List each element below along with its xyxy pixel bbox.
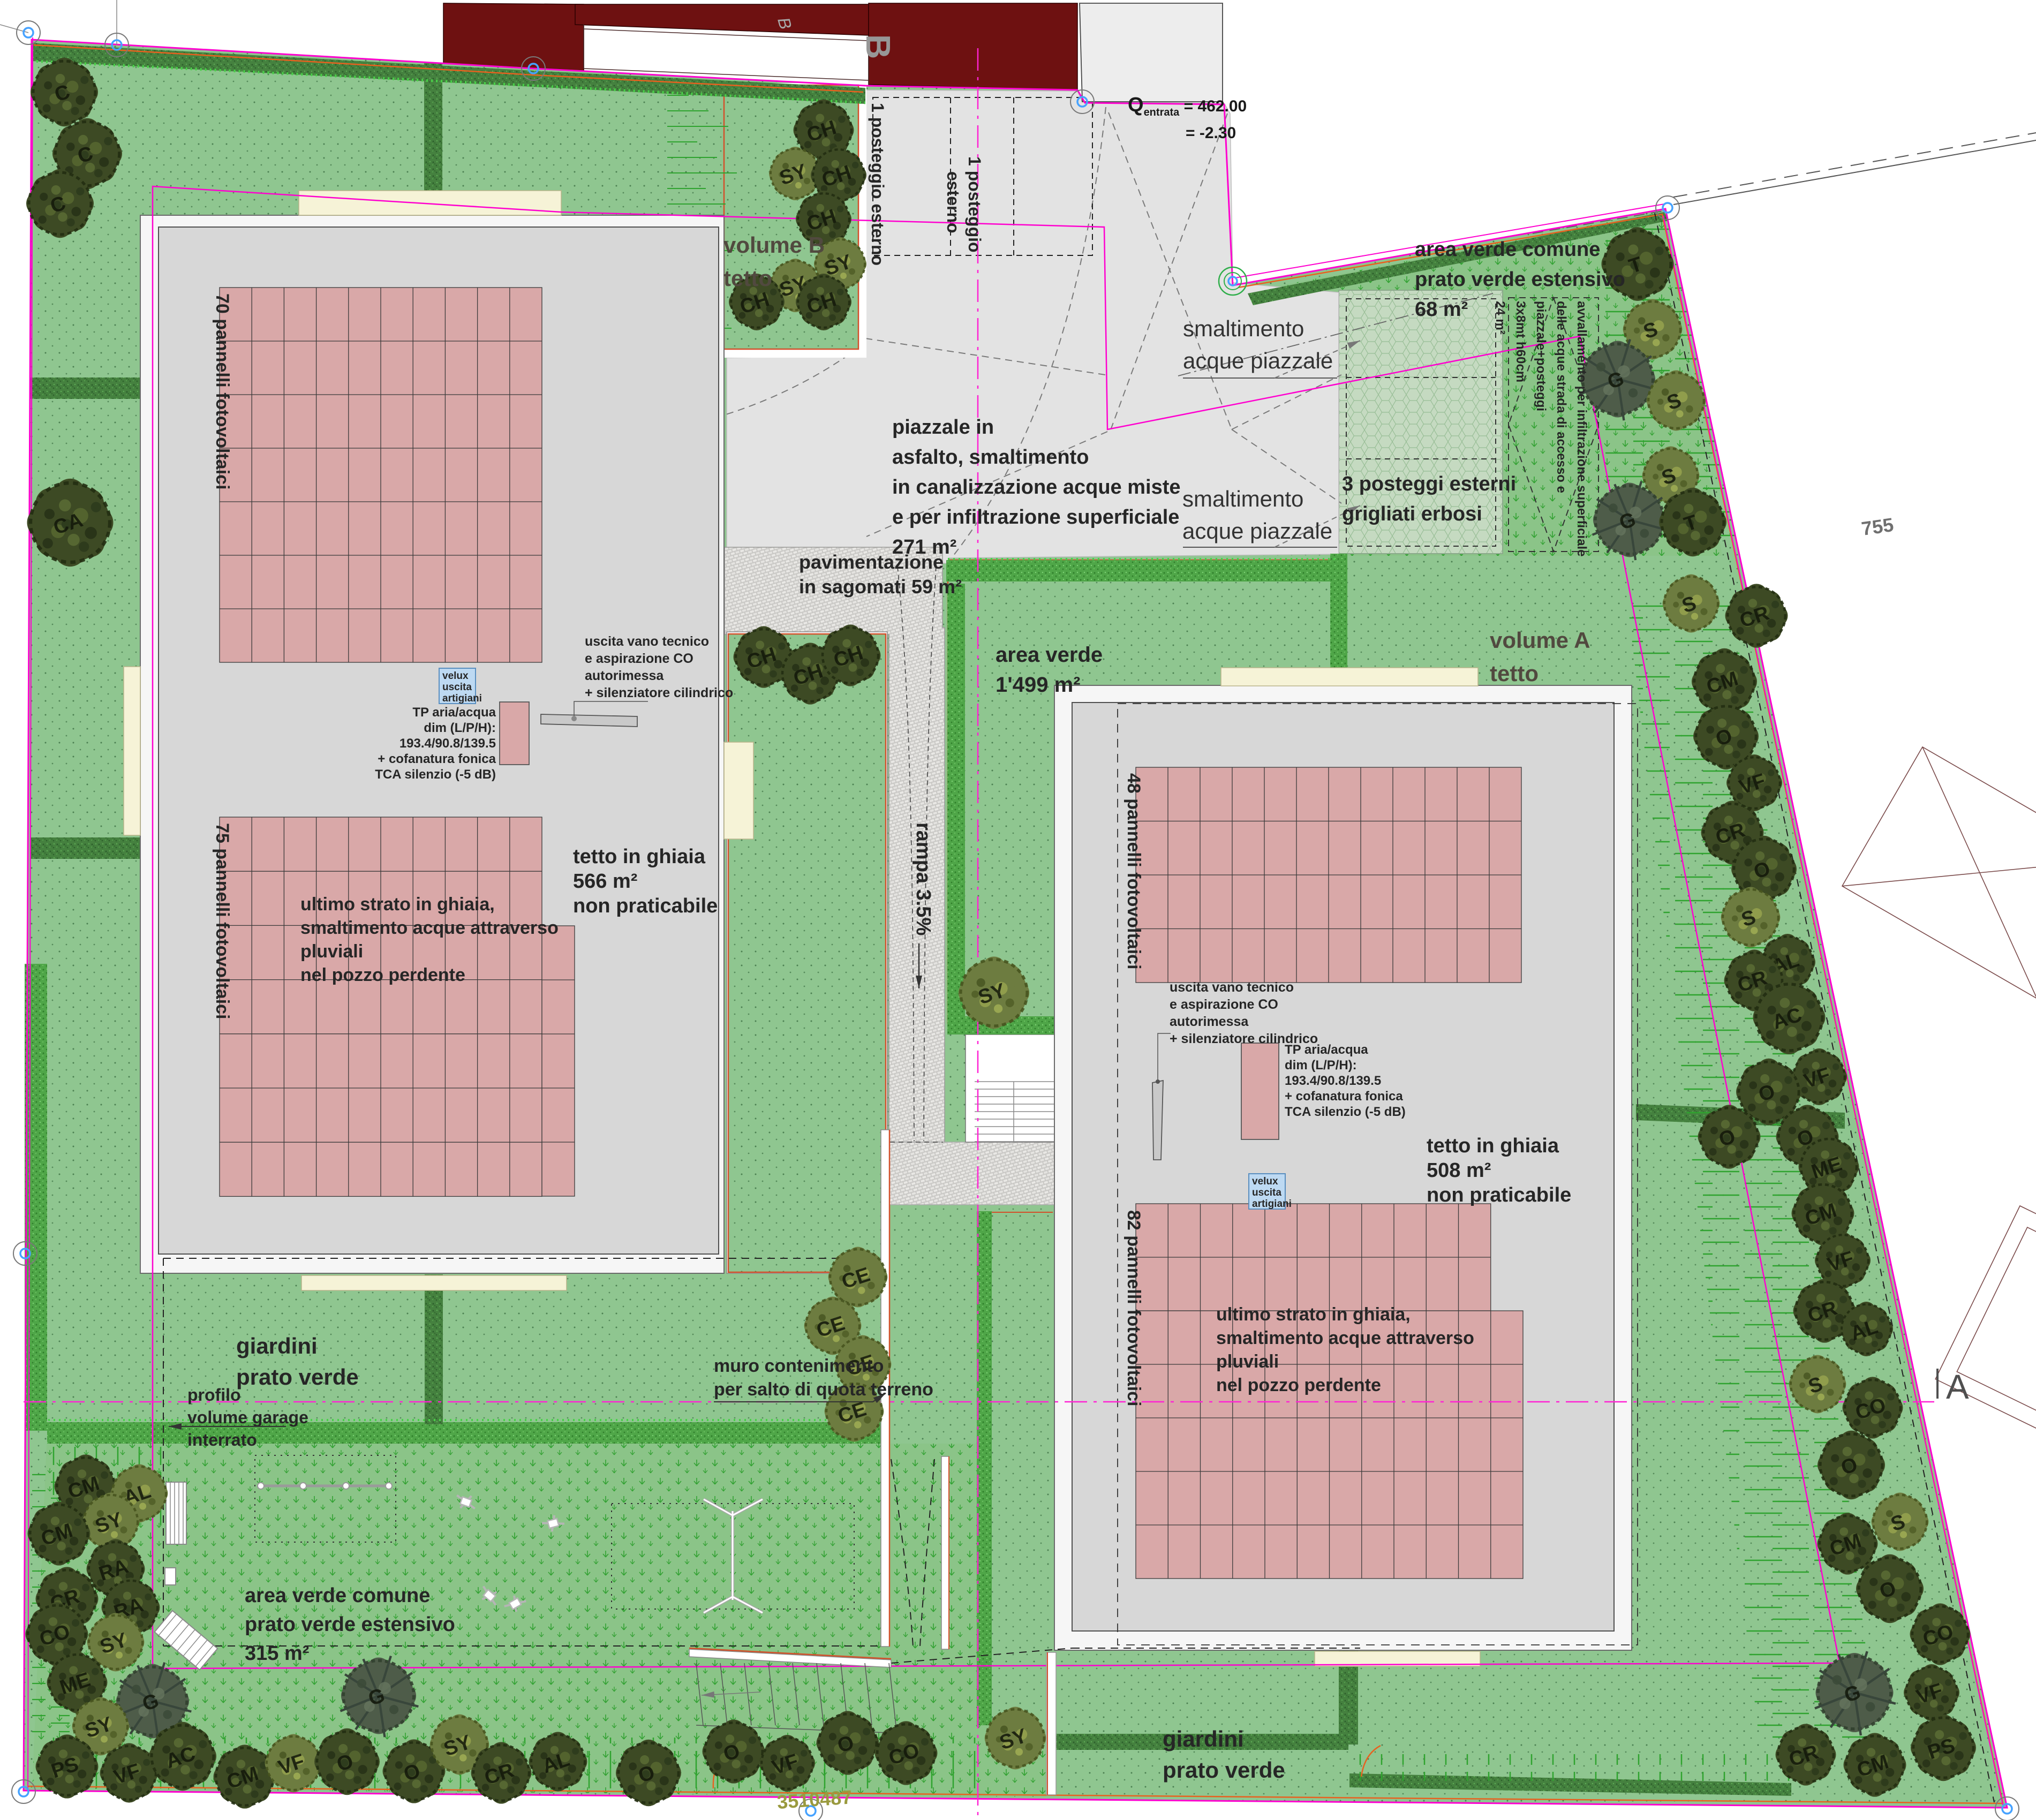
- svg-text:smaltimento acque attraverso: smaltimento acque attraverso: [1216, 1328, 1474, 1348]
- svg-text:1'499 m²: 1'499 m²: [996, 673, 1081, 697]
- svg-text:68 m²: 68 m²: [1415, 298, 1468, 321]
- svg-text:75 pannelli fotovoltaici: 75 pannelli fotovoltaici: [212, 823, 232, 1019]
- svg-text:artigiani: artigiani: [1252, 1198, 1292, 1210]
- svg-text:prato verde: prato verde: [236, 1364, 359, 1389]
- svg-text:volume A: volume A: [1490, 628, 1590, 653]
- svg-text:566 m²: 566 m²: [573, 870, 637, 893]
- svg-text:per salto di quota terreno: per salto di quota terreno: [714, 1379, 933, 1400]
- svg-text:rampa 3.5%: rampa 3.5%: [912, 822, 934, 935]
- svg-text:TCA silenzio (-5 dB): TCA silenzio (-5 dB): [1285, 1105, 1406, 1119]
- svg-text:piazzale in: piazzale in: [892, 416, 994, 439]
- svg-text:giardini: giardini: [1163, 1726, 1244, 1751]
- svg-text:dim (L/P/H):: dim (L/P/H):: [424, 721, 496, 735]
- svg-text:tetto: tetto: [1490, 661, 1539, 686]
- svg-text:193.4/90.8/139.5: 193.4/90.8/139.5: [399, 736, 496, 751]
- svg-text:70 pannelli fotovoltaici: 70 pannelli fotovoltaici: [212, 293, 232, 490]
- svg-text:artigiani: artigiani: [442, 693, 482, 704]
- svg-text:area verde comune: area verde comune: [245, 1584, 430, 1607]
- svg-text:area verde: area verde: [996, 643, 1103, 667]
- svg-text:48 pannelli fotovoltaici: 48 pannelli fotovoltaici: [1123, 773, 1144, 970]
- svg-text:smaltimento: smaltimento: [1182, 486, 1303, 511]
- svg-text:acque piazzale: acque piazzale: [1182, 518, 1332, 543]
- svg-text:non praticabile: non praticabile: [573, 895, 718, 917]
- svg-text:interrato: interrato: [187, 1430, 257, 1449]
- svg-text:TCA silenzio (-5 dB): TCA silenzio (-5 dB): [375, 767, 496, 782]
- svg-text:82 pannelli fotovoltaici: 82 pannelli fotovoltaici: [1123, 1210, 1144, 1407]
- svg-text:tetto: tetto: [723, 266, 772, 291]
- svg-text:acque piazzale: acque piazzale: [1183, 348, 1333, 373]
- svg-text:asfalto, smaltimento: asfalto, smaltimento: [892, 446, 1089, 469]
- svg-text:+ cofanatura fonica: + cofanatura fonica: [1285, 1089, 1403, 1104]
- svg-text:3 posteggi esterni: 3 posteggi esterni: [1342, 473, 1516, 495]
- svg-text:TP aria/acqua: TP aria/acqua: [412, 705, 496, 720]
- svg-text:volume B: volume B: [723, 232, 825, 258]
- svg-text:508 m²: 508 m²: [1427, 1159, 1491, 1182]
- svg-text:prato verde estensivo: prato verde estensivo: [245, 1613, 455, 1636]
- svg-text:= -2.30: = -2.30: [1186, 124, 1236, 142]
- svg-text:pluviali: pluviali: [300, 941, 363, 962]
- svg-text:1 posteggio esterno: 1 posteggio esterno: [868, 103, 887, 266]
- svg-text:nel pozzo perdente: nel pozzo perdente: [300, 965, 465, 985]
- svg-text:velux: velux: [1252, 1176, 1278, 1187]
- svg-text:nel pozzo perdente: nel pozzo perdente: [1216, 1375, 1381, 1395]
- svg-text:prato verde: prato verde: [1163, 1757, 1285, 1783]
- svg-text:dim (L/P/H):: dim (L/P/H):: [1285, 1058, 1357, 1073]
- svg-text:uscita vano tecnico: uscita vano tecnico: [585, 634, 709, 649]
- svg-text:volume garage: volume garage: [187, 1408, 308, 1427]
- svg-text:755: 755: [1860, 513, 1895, 540]
- svg-text:smaltimento acque attraverso: smaltimento acque attraverso: [300, 918, 559, 938]
- svg-text:A: A: [1946, 1368, 1969, 1406]
- svg-text:3510487: 3510487: [776, 1786, 853, 1813]
- svg-text:pluviali: pluviali: [1216, 1351, 1279, 1372]
- svg-text:+ silenziatore cilindrico: + silenziatore cilindrico: [1170, 1031, 1318, 1046]
- svg-text:315 m²: 315 m²: [245, 1642, 309, 1665]
- svg-text:uscita: uscita: [442, 682, 472, 693]
- svg-text:in sagomati 59 m²: in sagomati 59 m²: [799, 576, 962, 598]
- svg-text:ultimo strato in ghiaia,: ultimo strato in ghiaia,: [1216, 1304, 1411, 1325]
- svg-text:velux: velux: [442, 670, 469, 682]
- svg-text:uscita vano tecnico: uscita vano tecnico: [1170, 980, 1294, 995]
- svg-text:tetto in ghiaia: tetto in ghiaia: [573, 845, 706, 868]
- svg-text:non praticabile: non praticabile: [1427, 1184, 1571, 1206]
- svg-text:autorimessa: autorimessa: [1170, 1014, 1249, 1029]
- svg-text:uscita: uscita: [1252, 1187, 1281, 1198]
- svg-text:in canalizzazione acque miste: in canalizzazione acque miste: [892, 476, 1181, 499]
- svg-text:+ silenziatore cilindrico: + silenziatore cilindrico: [585, 685, 733, 700]
- svg-text:smaltimento: smaltimento: [1183, 316, 1304, 341]
- svg-text:+ cofanatura fonica: + cofanatura fonica: [378, 752, 496, 766]
- svg-text:grigliati erbosi: grigliati erbosi: [1342, 503, 1482, 525]
- svg-text:pavimentazione: pavimentazione: [799, 551, 944, 573]
- svg-text:ultimo strato in ghiaia,: ultimo strato in ghiaia,: [300, 894, 495, 915]
- svg-text:muro contenimento: muro contenimento: [714, 1356, 884, 1376]
- svg-text:area verde comune: area verde comune: [1415, 238, 1600, 261]
- svg-text:profilo: profilo: [187, 1385, 241, 1404]
- svg-text:giardini: giardini: [236, 1333, 318, 1358]
- svg-text:tetto in ghiaia: tetto in ghiaia: [1427, 1135, 1559, 1157]
- svg-text:prato verde estensivo: prato verde estensivo: [1415, 268, 1625, 291]
- svg-text:autorimessa: autorimessa: [585, 668, 664, 683]
- svg-text:e aspirazione CO: e aspirazione CO: [585, 651, 693, 666]
- svg-text:e aspirazione CO: e aspirazione CO: [1170, 997, 1278, 1012]
- svg-text:193.4/90.8/139.5: 193.4/90.8/139.5: [1285, 1074, 1381, 1088]
- svg-text:e per infiltrazione superficia: e per infiltrazione superficiale: [892, 506, 1179, 528]
- svg-text:B: B: [859, 34, 898, 59]
